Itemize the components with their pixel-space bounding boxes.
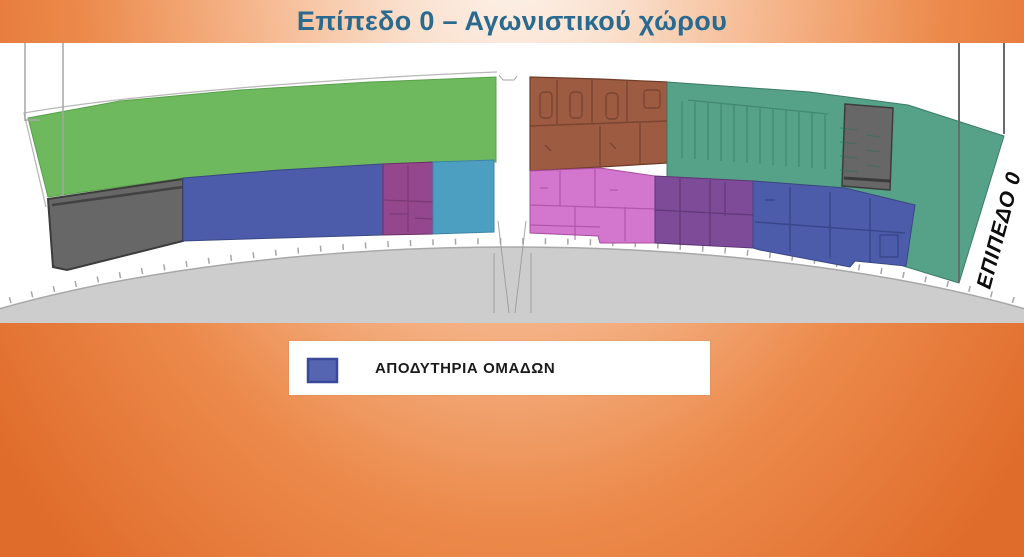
floor-plan-drawing: ΕΠΙΠΕΔΟ 0 [0, 43, 1024, 323]
page-title: Επίπεδο 0 – Αγωνιστικού χώρου [0, 0, 1024, 43]
floor-plan-band: ΕΠΙΠΕΔΟ 0 [0, 43, 1024, 323]
zone-lightblue-left [433, 160, 494, 234]
legend-swatch-icon [306, 357, 339, 384]
legend-item-label: ΑΠΟΔΥΤΗΡΙΑ ΟΜΑΔΩΝ [375, 341, 555, 395]
zone-blue-left [183, 164, 383, 241]
legend: ΑΠΟΔΥΤΗΡΙΑ ΟΜΑΔΩΝ [289, 341, 710, 395]
